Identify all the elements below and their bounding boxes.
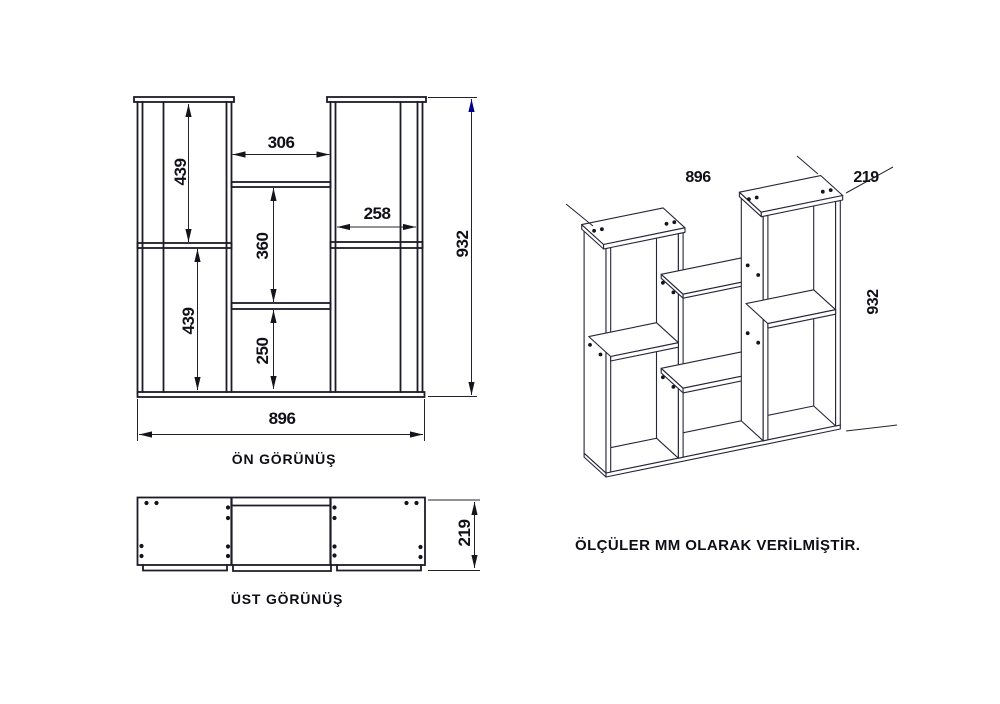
iso-dim-depth-label: 219	[853, 169, 879, 186]
iso-view-geometry	[582, 176, 843, 477]
top-dim-depth-label: 219	[455, 520, 474, 547]
front-dim-lower-left-label: 439	[179, 308, 198, 335]
top-view-screw-holes	[139, 501, 422, 559]
iso-dim-height-label: 932	[865, 289, 882, 315]
front-dim-upper-left-label: 439	[171, 159, 190, 186]
front-view: 439 439 306 360 250 258 932 896	[134, 97, 477, 441]
front-view-dimension-lines	[138, 98, 478, 442]
drawing-svg: 439 439 306 360 250 258 932 896	[0, 0, 1000, 704]
top-view: 219	[138, 498, 481, 572]
top-view-title: ÜST GÖRÜNÜŞ	[231, 591, 343, 607]
iso-view-leader-lines	[566, 156, 897, 431]
top-view-object-lines	[138, 498, 426, 572]
front-dim-right-shelf-label: 258	[364, 204, 391, 223]
front-dim-height-label: 932	[453, 231, 472, 258]
front-view-title: ÖN GÖRÜNÜŞ	[232, 451, 336, 467]
iso-dim-width-label: 896	[685, 169, 711, 186]
units-note: ÖLÇÜLER MM OLARAK VERİLMİŞTİR.	[575, 537, 860, 554]
technical-drawing-sheet: 439 439 306 360 250 258 932 896	[0, 0, 1000, 704]
front-dim-top-opening-label: 306	[268, 133, 295, 152]
front-dim-width-label: 896	[269, 409, 296, 428]
front-dim-middle-upper-label: 360	[253, 233, 272, 260]
iso-view: 896 219 932	[566, 156, 897, 477]
front-dim-middle-lower-label: 250	[253, 338, 272, 365]
